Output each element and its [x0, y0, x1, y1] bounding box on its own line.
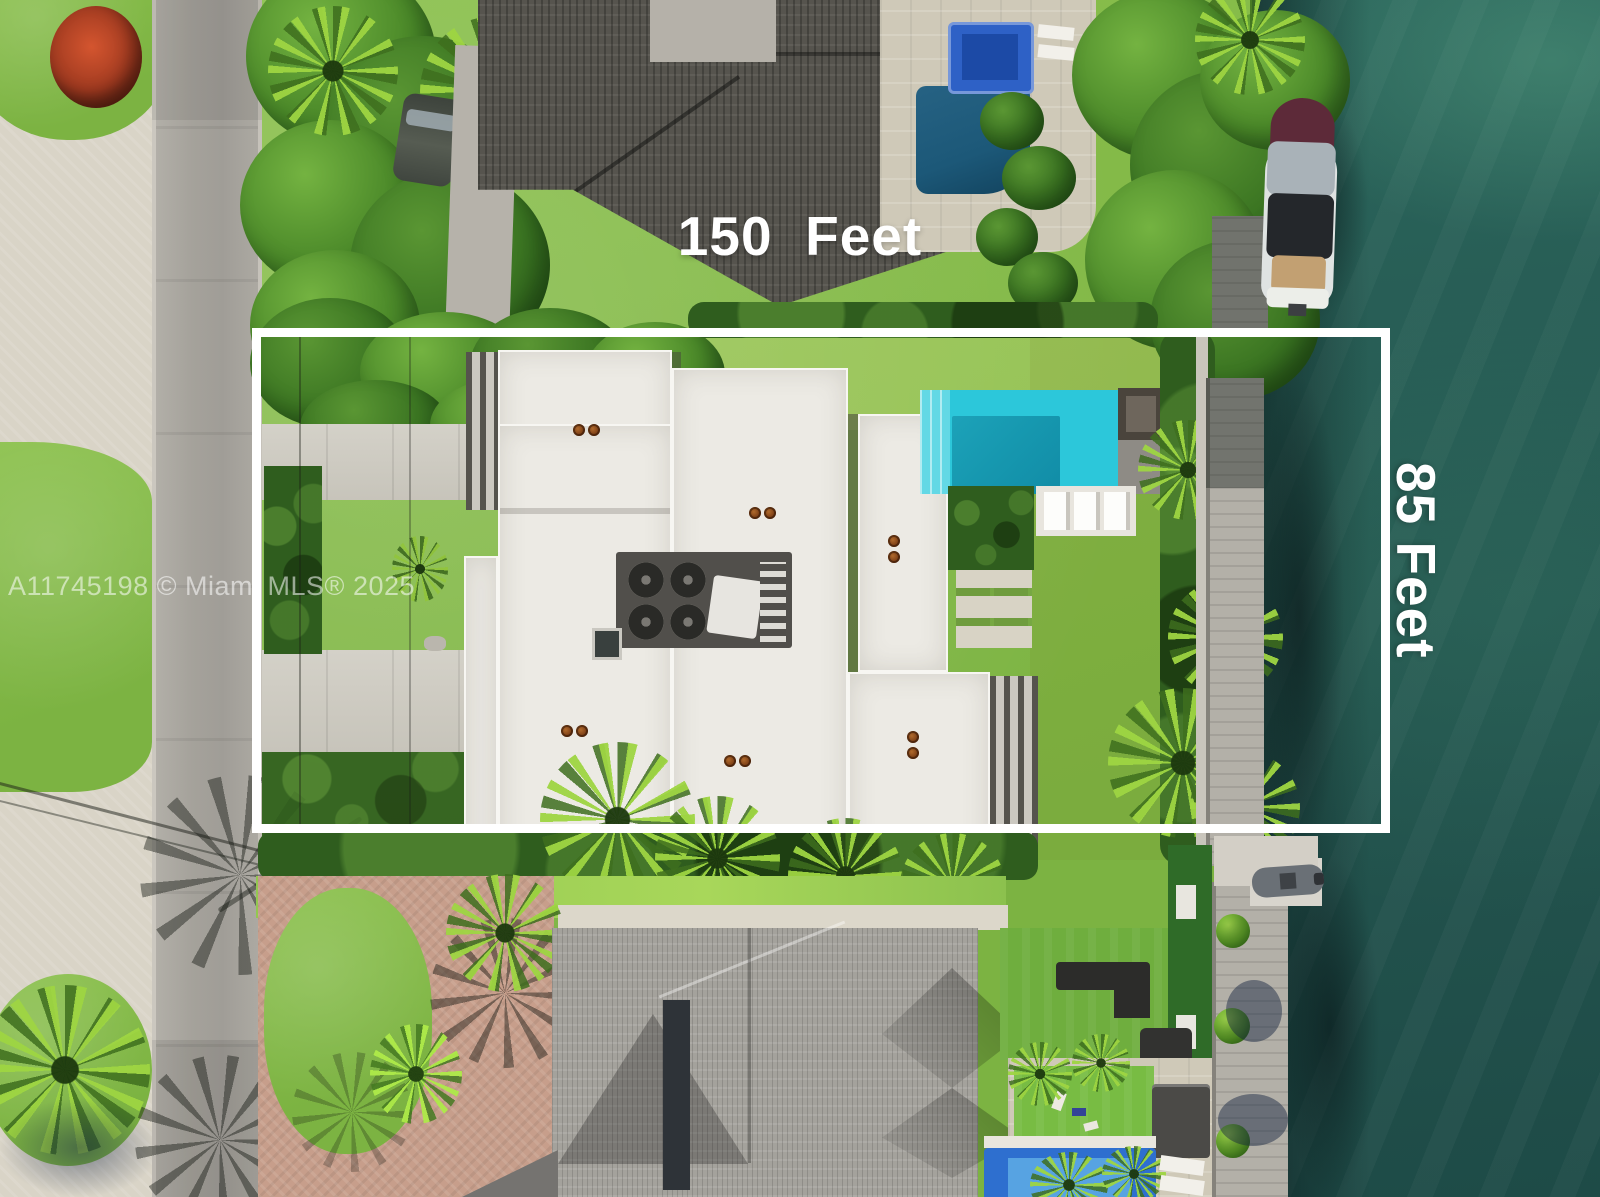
roof-facet — [558, 1014, 748, 1164]
courtyard-plants — [1002, 146, 1076, 210]
parkway-lawn — [0, 442, 152, 792]
boat-console — [1279, 872, 1296, 889]
depth-measurement-label: 85 Feet — [1384, 462, 1448, 659]
width-measurement-label: 150 Feet — [645, 204, 955, 268]
car-windshield — [405, 108, 457, 132]
property-boundary-outline — [252, 328, 1390, 833]
towel — [1083, 1120, 1099, 1131]
boat-engine — [1288, 304, 1306, 317]
roof-ridge — [566, 75, 740, 199]
small-boat — [1251, 864, 1325, 899]
mls-watermark: A11745198 © Miami MLS® 2025 — [8, 571, 415, 602]
golf-mat — [1176, 885, 1196, 919]
moored-boat — [1252, 97, 1347, 312]
palm-tree — [446, 874, 564, 992]
courtyard-plants — [980, 92, 1044, 150]
neighbor-spa — [948, 22, 1034, 94]
boat-deck — [1266, 141, 1336, 197]
neighbor-house-roof-south — [552, 928, 978, 1197]
boat-motor — [1314, 873, 1325, 886]
dock-shadow-on-water — [1280, 855, 1380, 1197]
roof-ridge — [748, 928, 751, 1163]
roof-flat-strip — [663, 1000, 690, 1190]
aerial-photo: 150 Feet 85 Feet A11745198 © Miami MLS® … — [0, 0, 1600, 1197]
garden-shed — [1152, 1084, 1210, 1158]
dock-bush — [1216, 914, 1250, 948]
palm-tree — [1072, 1034, 1130, 1092]
yucca-plant — [370, 1024, 462, 1124]
roof-ridge — [659, 921, 846, 999]
boat-bimini-top — [1266, 193, 1334, 259]
palm-shadow-on-dock — [1226, 980, 1282, 1042]
palm-tree — [1102, 1146, 1166, 1197]
palm-tree — [268, 6, 398, 136]
garden-walk — [558, 905, 1008, 930]
red-flowering-bush — [50, 6, 142, 108]
towel — [1072, 1108, 1086, 1116]
entry-walk — [650, 0, 776, 62]
outdoor-sofa — [1114, 984, 1150, 1018]
palm-tree — [1008, 1042, 1072, 1106]
spa-cover — [962, 34, 1018, 80]
palm-shadow-on-dock — [1218, 1094, 1288, 1146]
